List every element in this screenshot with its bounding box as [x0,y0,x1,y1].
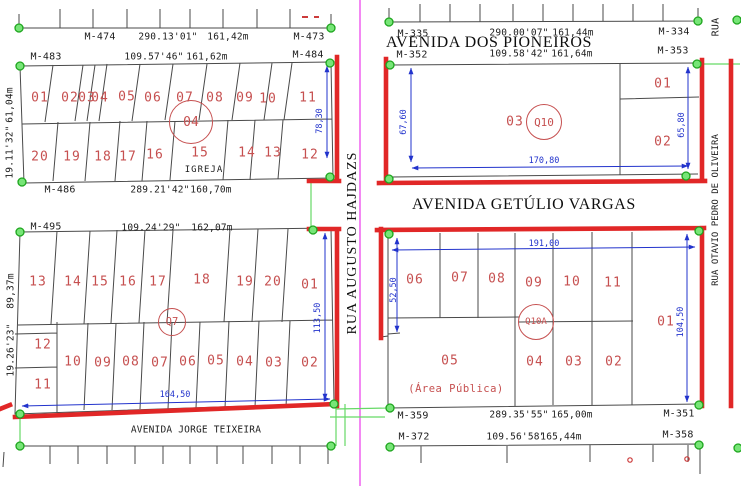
cad-cadastral-plan: M-474 290.13'01" 161,42m M-473 M-483 109… [0,0,741,486]
bearing-q10a-bottom: 289.35'55" [489,410,548,421]
lot-number: 20 [264,275,282,290]
lot-number: 07 [151,356,169,371]
lot-number: 10 [563,275,581,290]
marker-label-m359: M-359 [397,411,428,422]
length-br-road: 165,44m [540,432,581,443]
lot-number: 15 [91,275,109,290]
block-id: Q10 [534,116,554,129]
lot-number: 02 [61,91,79,106]
bearing-tl-road: 290.13'01" [138,32,197,43]
dim-q4-right: 78,30 [315,108,325,134]
marker-label-m372: M-372 [398,432,429,443]
plan-linework [0,0,741,486]
length-q4-bottom: 160,70m [190,185,231,196]
length-q4-top: 161,62m [186,52,227,63]
dim-q10a-left: 52,50 [389,277,399,303]
lot-number: 12 [301,148,319,163]
lot-number: 10 [259,92,277,107]
lot-number: 20 [31,150,49,165]
lot-number: 02 [605,355,623,370]
dim-q4-left-angle: 19.11'32" [5,125,16,178]
lot-number: 06 [406,273,424,288]
lot-number: 04 [91,91,109,106]
street-name-otavio-pedro: RUA OTAVIO PEDRO DE OLIVEIRA [711,134,721,286]
lot-number: 01 [654,77,672,92]
bearing-br-road: 109.56'58" [486,432,545,443]
lot-number: 19 [63,150,81,165]
dim-q7-left-angle: 19.26'23" [6,323,17,376]
block-circle-q10: Q10 [526,104,562,140]
lot-number: 06 [179,355,197,370]
lot-number: 11 [34,378,52,393]
bearing-q4-bottom: 289.21'42" [130,185,189,196]
lot-number: 19 [236,275,254,290]
bearing-q4-top: 109.57'46" [124,52,183,63]
lot-number: 10 [64,355,82,370]
lot-number: 11 [299,91,317,106]
marker-label-m495: M-495 [30,222,61,233]
dim-q7-bottom: 164,50 [160,390,191,400]
street-name-augusto-hajdazs: RUA AUGUSTO HAJDAZS [345,152,361,335]
lot-number: 05 [441,354,459,369]
dim-q10-left: 67,60 [399,109,409,135]
lot-number: 17 [119,150,137,165]
length-tl-road: 161,42m [207,32,248,43]
lot-number: 03 [265,356,283,371]
lot-number: 15 [191,146,209,161]
marker-label-m474: M-474 [84,32,115,43]
marker-label-m483: M-483 [30,52,61,63]
lot-number: 17 [149,275,167,290]
church-label: IGREJA [185,165,224,175]
lot-number: 13 [264,146,282,161]
lot-number: 09 [236,91,254,106]
bearing-q10-top: 109.58'42" [489,49,548,60]
dim-q10-right: 65,80 [677,112,687,138]
lot-number: 16 [146,148,164,163]
marker-label-m473: M-473 [293,32,324,43]
lot-number: 09 [525,276,543,291]
lot-number: 05 [207,354,225,369]
lot-number: 04 [526,355,544,370]
dim-q7-left-length: 89,37m [6,273,17,309]
length-q10-top: 161,64m [551,49,592,60]
lot-number: 03 [565,355,583,370]
length-q10a-bottom: 165,00m [551,410,592,421]
lot-number: 02 [301,356,319,371]
street-name-jorge-teixeira: AVENIDA JORGE TEIXEIRA [131,425,261,436]
lot-number: 08 [488,272,506,287]
block-circle-q7: Q7 [158,308,186,336]
lot-number: 18 [94,150,112,165]
lot-number: 04 [236,355,254,370]
lot-number: 11 [604,276,622,291]
block-id: Q10A [525,317,547,327]
lot-number: 18 [193,273,211,288]
marker-label-m358: M-358 [662,430,693,441]
dim-q7-right: 113,50 [313,303,323,334]
lot-number: 12 [34,338,52,353]
lot-number: 01 [31,91,49,106]
marker-label-m353: M-353 [657,46,688,57]
dim-q10a-right: 104,50 [676,307,686,338]
lot-number: 09 [94,356,112,371]
lot-number: 07 [451,271,469,286]
block-id: Q7 [166,316,179,328]
lot-number: 13 [29,275,47,290]
block-circle-q10a: Q10A [518,304,554,340]
lot-number: 03 [506,115,524,130]
lot-number: 01 [301,278,319,293]
marker-label-m484: M-484 [292,50,323,61]
lot-number: 08 [122,355,140,370]
dim-q10a-top: 191,00 [529,239,560,249]
marker-label-m352: M-352 [396,50,427,61]
length-q7-top: 162,07m [191,223,232,234]
dim-q10-bottom: 170,80 [529,156,560,166]
bearing-q7-top: 109.24'29" [121,223,180,234]
lot-number: 06 [144,91,162,106]
marker-label-m334: M-334 [658,27,689,38]
dim-q4-left-length: 61,04m [5,87,16,123]
block-id: 04 [183,115,199,130]
marker-label-m486: M-486 [44,185,75,196]
block-circle-q4: 04 [169,100,213,144]
lot-number: 05 [118,90,136,105]
lot-number: 01 [657,315,675,330]
lot-number: 08 [206,91,224,106]
lot-number: 02 [654,135,672,150]
public-area-label: (Área Pública) [408,383,504,395]
marker-label-m351: M-351 [663,409,694,420]
street-name-getulio-vargas: AVENIDA GETÚLIO VARGAS [412,196,636,214]
lot-number: 14 [238,146,256,161]
street-name-rua-corner: RUA [711,18,722,37]
lot-number: 16 [119,275,137,290]
lot-number: 14 [64,275,82,290]
